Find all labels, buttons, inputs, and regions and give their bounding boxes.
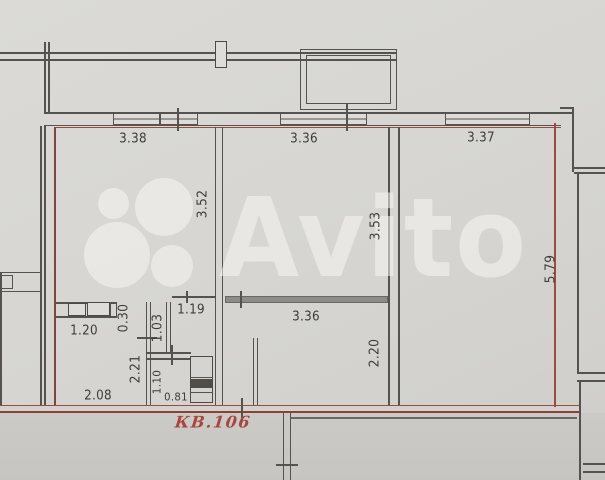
dim-label: 5.79: [544, 255, 559, 284]
dimension-tick: [240, 291, 242, 308]
dimension-tick: [276, 464, 298, 466]
dim-label: 2.21: [129, 355, 144, 384]
dim-label: 1.19: [177, 303, 205, 318]
balcony-divider-line: [48, 42, 50, 112]
dim-label: 0.30: [117, 304, 132, 333]
dim-label: 3.36: [292, 310, 320, 325]
window: [160, 113, 198, 125]
dimension-tick: [186, 291, 188, 303]
right-step-line: [574, 167, 605, 169]
building-corridor-area: [0, 413, 605, 480]
floor-plan-image: Avito 3.38 3.36 3.37 3.52 3.53 5.79 1.20…: [0, 0, 605, 480]
corridor-wall: [283, 413, 291, 480]
neighbour-wall-line: [577, 380, 605, 382]
left-wall-outer-line: [44, 126, 46, 407]
neighbour-wall-line: [40, 126, 42, 407]
middle-balcony-inner-outline: [306, 55, 391, 104]
dim-label: 0.81: [164, 391, 188, 404]
dim-label: 3.53: [369, 212, 384, 241]
wall-middle-right-divider: [388, 127, 400, 405]
window: [445, 113, 530, 125]
apartment-boundary-bottom: [0, 405, 579, 413]
dim-label: 3.38: [119, 132, 147, 147]
dim-label: 2.08: [84, 389, 112, 404]
balcony-divider-line: [44, 42, 46, 112]
window: [280, 113, 347, 125]
corridor-outline: [291, 417, 577, 419]
right-outer-wall-line: [577, 173, 579, 373]
built-in-unit: [87, 302, 110, 316]
balcony-post: [215, 41, 227, 68]
dim-label: 1.10: [151, 370, 164, 394]
apartment-number-label: КВ.106: [174, 413, 252, 432]
dim-label: 3.37: [467, 131, 495, 146]
wall-left-room-divider: [215, 127, 223, 405]
dimension-tick: [346, 104, 348, 131]
right-step-line: [574, 172, 605, 174]
dim-label: 3.52: [196, 190, 211, 219]
apartment-boundary-top: [55, 127, 561, 129]
neighbour-window-post: [1, 275, 13, 289]
built-in-unit: [68, 303, 86, 316]
dim-label: 3.36: [290, 132, 318, 147]
duct-shaft-filled: [191, 379, 212, 388]
hall-top-wall-line: [172, 296, 215, 298]
gray-partition: [225, 296, 388, 303]
right-outer-wall-line: [572, 108, 574, 172]
window: [347, 113, 367, 125]
entry-wall-stub: [253, 338, 258, 405]
kitchen-band-line: [56, 316, 117, 318]
duct-shaft-divider: [190, 392, 213, 393]
duct-shaft-divider: [190, 377, 213, 378]
dim-label: 1.20: [70, 324, 98, 339]
right-outer-wall-line: [579, 381, 581, 480]
neighbour-wall-line: [583, 471, 605, 473]
neighbour-wall-line: [577, 372, 605, 374]
dimension-tick: [171, 345, 173, 365]
building-edge-line: [0, 272, 2, 408]
apartment-boundary-left: [54, 127, 56, 407]
bathroom-wall-line: [146, 352, 191, 354]
bathroom-wall-line: [146, 358, 191, 360]
window: [113, 113, 160, 125]
neighbour-wall-line: [583, 463, 605, 465]
dim-label: 2.20: [368, 339, 383, 368]
dimension-tick: [177, 108, 179, 131]
dim-label: 1.03: [151, 314, 166, 343]
